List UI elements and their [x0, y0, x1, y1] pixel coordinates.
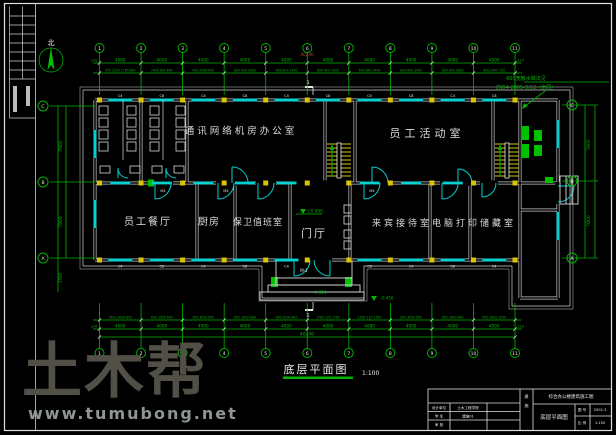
- toilet-fixture: [100, 166, 110, 173]
- column-marker: [222, 181, 227, 186]
- grid-bubble-label: 9: [430, 351, 433, 357]
- dim-text: 600 3000 600: [151, 316, 173, 320]
- cad-sheet: 北: [0, 0, 616, 435]
- left-dim-cb: 7800: [58, 140, 64, 152]
- grid-bubble-label: B: [570, 179, 573, 185]
- entrance-door-label: M-1: [300, 268, 308, 273]
- column-marker: [263, 258, 268, 263]
- window-label: C4: [492, 265, 497, 269]
- dim-text: 1760 120 1760: [358, 316, 382, 320]
- window: [108, 99, 132, 102]
- grid-bubble-label: 4: [223, 46, 226, 52]
- window: [274, 259, 298, 262]
- grid-bubble-label: 8: [389, 351, 392, 357]
- window-label: C4: [201, 94, 206, 98]
- column-marker: [305, 98, 310, 103]
- column-marker: [388, 181, 393, 186]
- window-label: C8: [367, 265, 372, 269]
- column-marker: [471, 258, 476, 263]
- grid-bubble-label: 6: [306, 46, 309, 52]
- dim-text: 800 600 2400: [317, 69, 339, 73]
- column-marker: [180, 181, 185, 186]
- dim-text: 120: [91, 59, 97, 63]
- dim-text: 4000: [323, 58, 334, 63]
- column-marker: [346, 98, 351, 103]
- window-label: C4: [118, 265, 123, 269]
- column-marker: [429, 98, 434, 103]
- dim-text: 4000: [364, 324, 375, 329]
- walls: [95, 100, 561, 298]
- grid-bubble-label: C: [570, 103, 573, 109]
- dim-text: 1760 120 1760: [316, 316, 340, 320]
- grid-bubble-label: 5: [264, 351, 267, 357]
- tb-row-label: 设计单位: [432, 405, 447, 410]
- dim-text: 1500 3000 600: [108, 316, 132, 320]
- grid-bubble-label: C: [41, 104, 44, 110]
- dim-text: 4000: [156, 58, 167, 63]
- section-mark-bottom: 1: [306, 313, 310, 319]
- window: [358, 259, 382, 262]
- column-marker: [346, 258, 351, 263]
- plan-scale: 1:100: [362, 370, 379, 377]
- column-marker: [471, 98, 476, 103]
- window: [274, 99, 298, 102]
- window-label: C4: [118, 94, 123, 98]
- column-marker: [429, 181, 434, 186]
- dim-text: 600 800 2400: [442, 69, 464, 73]
- window: [233, 99, 257, 102]
- plan-title-text: 底层平面图: [284, 362, 349, 376]
- dim-text: 4000: [406, 58, 417, 63]
- room-label-foyer: 门厅: [301, 226, 327, 240]
- title-block-text: 综合办公楼建筑施工图 底层平面图 建施 设计单位 土木工程学院 学 生 建施01…: [432, 393, 607, 427]
- column-marker: [222, 98, 227, 103]
- dim-text: 4000: [156, 324, 167, 329]
- window-label: C8: [326, 94, 331, 98]
- window: [358, 99, 382, 102]
- toilet-fixture: [130, 166, 140, 173]
- dim-text: 600 3000 600: [234, 316, 256, 320]
- column-marker: [305, 181, 310, 186]
- grid-bubble-label: 9: [430, 46, 433, 52]
- window-label: C4: [284, 265, 289, 269]
- window: [193, 182, 213, 185]
- toilet-stall: [176, 118, 185, 127]
- level-ground: -0.450: [381, 296, 394, 301]
- window: [399, 259, 423, 262]
- dim-text: 600 2400 150: [483, 69, 505, 73]
- grid-bubble-label: 4: [223, 351, 226, 357]
- dim-text: 150 1500 1750 600: [105, 69, 136, 73]
- window: [110, 182, 130, 185]
- dim-text: 4000: [198, 324, 209, 329]
- dim-text: 4000: [406, 324, 417, 329]
- toilet-stall: [127, 106, 136, 115]
- toilet-stall: [99, 130, 108, 139]
- window: [191, 99, 215, 102]
- grid-bubble-label: A: [570, 256, 574, 262]
- toilet-stall: [176, 106, 185, 115]
- window: [276, 182, 296, 185]
- north-label: 北: [48, 39, 55, 47]
- window: [441, 99, 465, 102]
- toilet-stall: [127, 118, 136, 127]
- stair-right: [495, 143, 519, 178]
- room-label-security: 保卫值班室: [233, 216, 283, 228]
- toilet-stall: [150, 142, 159, 151]
- column-marker: [263, 98, 268, 103]
- dim-text: 600 3000 600: [193, 316, 215, 320]
- window-label: C8: [450, 265, 455, 269]
- dim-text: 600 2400 600: [193, 69, 215, 73]
- grid-bubble-label: 8: [389, 46, 392, 52]
- column-marker: [139, 258, 144, 263]
- grid-bubble-label: 6: [306, 351, 309, 357]
- toilet-stall: [99, 106, 108, 115]
- watermark-url: www.tumubong.net: [28, 404, 238, 423]
- apron-note-line1: 600宽散水做法见: [506, 75, 546, 82]
- dim-text: 120: [91, 325, 97, 329]
- dim-text: 4000: [489, 58, 500, 63]
- right-dim-ba: 7800: [586, 215, 592, 227]
- window: [191, 259, 215, 262]
- dim-text: 600 800 2400: [359, 69, 381, 73]
- window: [233, 259, 257, 262]
- column-marker: [97, 98, 102, 103]
- column-marker: [513, 98, 518, 103]
- column-marker: [97, 181, 102, 186]
- window: [482, 99, 506, 102]
- column-marker: [180, 98, 185, 103]
- tb-cell-label: 图 号: [578, 407, 587, 412]
- right-dim-cb: 7800: [586, 139, 592, 151]
- column-marker: [139, 181, 144, 186]
- door-label: M4: [223, 189, 229, 193]
- dimension-lines: 4000150 1500 1750 6001500 3000 600400040…: [91, 53, 524, 348]
- window-label: C4: [284, 94, 289, 98]
- grid-bubble-label: 10: [471, 46, 477, 52]
- window-label: C8: [409, 94, 414, 98]
- column-marker: [139, 98, 144, 103]
- tb-cell-value: 1:100: [595, 421, 606, 425]
- dim-text: 4000: [240, 58, 251, 63]
- apron-note: 600宽散水做法见 苏J04-2005-3/12（余同）: [496, 75, 609, 109]
- column-marker: [222, 258, 227, 263]
- toilet-stall: [150, 118, 159, 127]
- section-marks: 1 1: [305, 80, 313, 319]
- toilet-fixture: [174, 166, 184, 173]
- column-marker: [346, 181, 351, 186]
- grid-bubble-label: B: [41, 180, 44, 186]
- stair-left: [327, 143, 351, 178]
- dim-text: 600 3000 1500: [482, 316, 506, 320]
- dim-text: 600 3000 600: [442, 316, 464, 320]
- tb-row-value: 建施01: [462, 414, 474, 419]
- window-label: C8: [160, 94, 165, 98]
- window: [482, 259, 506, 262]
- window: [441, 259, 465, 262]
- grid-bubble-label: 3: [181, 46, 184, 52]
- dim-text: 4000: [489, 324, 500, 329]
- dim-text: 4000: [281, 58, 292, 63]
- window-label: C4: [201, 265, 206, 269]
- tb-cell-label: 比 例: [578, 420, 587, 425]
- dim-text: 120: [517, 59, 523, 63]
- grid-bubble-label: 2: [140, 46, 143, 52]
- dim-text: 2400 600 800: [151, 69, 173, 73]
- window: [150, 259, 174, 262]
- left-dim-porch: 1500: [58, 272, 63, 283]
- grid-bubble-label: 11: [512, 46, 518, 52]
- room-label-activity: 员工活动室: [390, 126, 465, 140]
- toilet-stall: [127, 130, 136, 139]
- window-label: C4: [367, 94, 372, 98]
- toilet-stall: [99, 142, 108, 151]
- window-label: C8: [243, 94, 248, 98]
- room-label-reception: 来宾接待室电脑打印储藏室: [372, 217, 516, 229]
- room-label-kitchen: 厨房: [198, 215, 220, 228]
- toilet-stall: [127, 142, 136, 151]
- north-compass: 北: [39, 39, 63, 72]
- window: [150, 99, 174, 102]
- dim-text: 600 800 2400: [276, 69, 298, 73]
- window-label: C8: [243, 265, 248, 269]
- project-title: 综合办公楼建筑施工图: [549, 393, 594, 400]
- annex-steps: [560, 176, 578, 204]
- dim-text: 4000: [364, 58, 375, 63]
- window: [360, 182, 380, 185]
- grid-bubble-label: A: [41, 256, 45, 262]
- toilet-stall: [150, 130, 159, 139]
- column-marker: [180, 258, 185, 263]
- side-label: 建施: [525, 393, 529, 408]
- window: [399, 99, 423, 102]
- window-label: C4: [409, 265, 414, 269]
- window-label: C8: [160, 265, 165, 269]
- left-grid: 7800 7800 1500: [50, 106, 95, 292]
- door-label: M4: [160, 189, 166, 193]
- dim-text: 4000: [240, 324, 251, 329]
- window: [316, 99, 340, 102]
- dim-text: 4000: [281, 324, 292, 329]
- section-mark-top: 1: [306, 80, 310, 86]
- grid-bubble-label: 1: [98, 46, 101, 52]
- grid-bubble-label: 5: [264, 46, 267, 52]
- dim-text: 120: [517, 325, 523, 329]
- column-marker: [97, 258, 102, 263]
- annex-fixtures: [522, 126, 553, 183]
- column-marker: [513, 181, 518, 186]
- window: [235, 182, 255, 185]
- room-label-comm: 通讯网络机房办公室: [185, 125, 298, 137]
- tb-cell-value: 2002-3: [594, 408, 607, 412]
- column-marker: [263, 181, 268, 186]
- column-marker: [471, 181, 476, 186]
- watermark-logo: 土木帮: [22, 342, 208, 402]
- window-label: C4: [450, 94, 455, 98]
- window-label: C8: [492, 94, 497, 98]
- plan-title: 底层平面图 1:100: [283, 362, 379, 379]
- dim-text: 4000: [115, 324, 126, 329]
- dim-text: 800 600 2400: [234, 69, 256, 73]
- column-marker: [388, 98, 393, 103]
- dim-text: 600 3000 600: [400, 316, 422, 320]
- toilet-stall: [176, 130, 185, 139]
- grid-bubble-label: 7: [347, 351, 350, 357]
- left-dim-ba: 7800: [58, 216, 64, 228]
- window: [401, 182, 421, 185]
- drawing-name: 底层平面图: [540, 413, 568, 421]
- grid-bubble-label: 11: [512, 351, 518, 357]
- column-marker: [429, 258, 434, 263]
- tb-row-label: 审 核: [435, 422, 444, 427]
- dim-text: 800 600 2400: [400, 69, 422, 73]
- toilet-fixture: [152, 166, 162, 173]
- tb-row-value: 土木工程学院: [457, 405, 479, 410]
- dim-text: 4000: [447, 58, 458, 63]
- apron-note-line2: 苏J04-2005-3/12（余同）: [496, 84, 556, 91]
- level-entry: -0.020: [314, 290, 327, 295]
- dim-text: 4000: [447, 324, 458, 329]
- grid-bubble-label: 7: [347, 46, 350, 52]
- dim-text: 600 3000 600: [276, 316, 298, 320]
- column-marker: [513, 258, 518, 263]
- dim-text: 4000: [115, 58, 126, 63]
- dim-text: 4000: [198, 58, 209, 63]
- window: [152, 182, 172, 185]
- tb-row-label: 学 生: [435, 414, 444, 419]
- dim-text: 4000: [323, 324, 334, 329]
- window: [108, 259, 132, 262]
- column-marker: [388, 258, 393, 263]
- grid-bubble-label: 10: [471, 351, 477, 357]
- level-zero: ±0.000: [307, 209, 323, 214]
- toilet-stall: [99, 118, 108, 127]
- binding-table: [10, 7, 36, 119]
- toilet-stall: [176, 142, 185, 151]
- toilet-stall: [150, 106, 159, 115]
- column-marker: [305, 258, 310, 263]
- door-label: M4: [369, 189, 375, 193]
- room-label-canteen: 员工餐厅: [124, 215, 172, 228]
- window: [443, 182, 463, 185]
